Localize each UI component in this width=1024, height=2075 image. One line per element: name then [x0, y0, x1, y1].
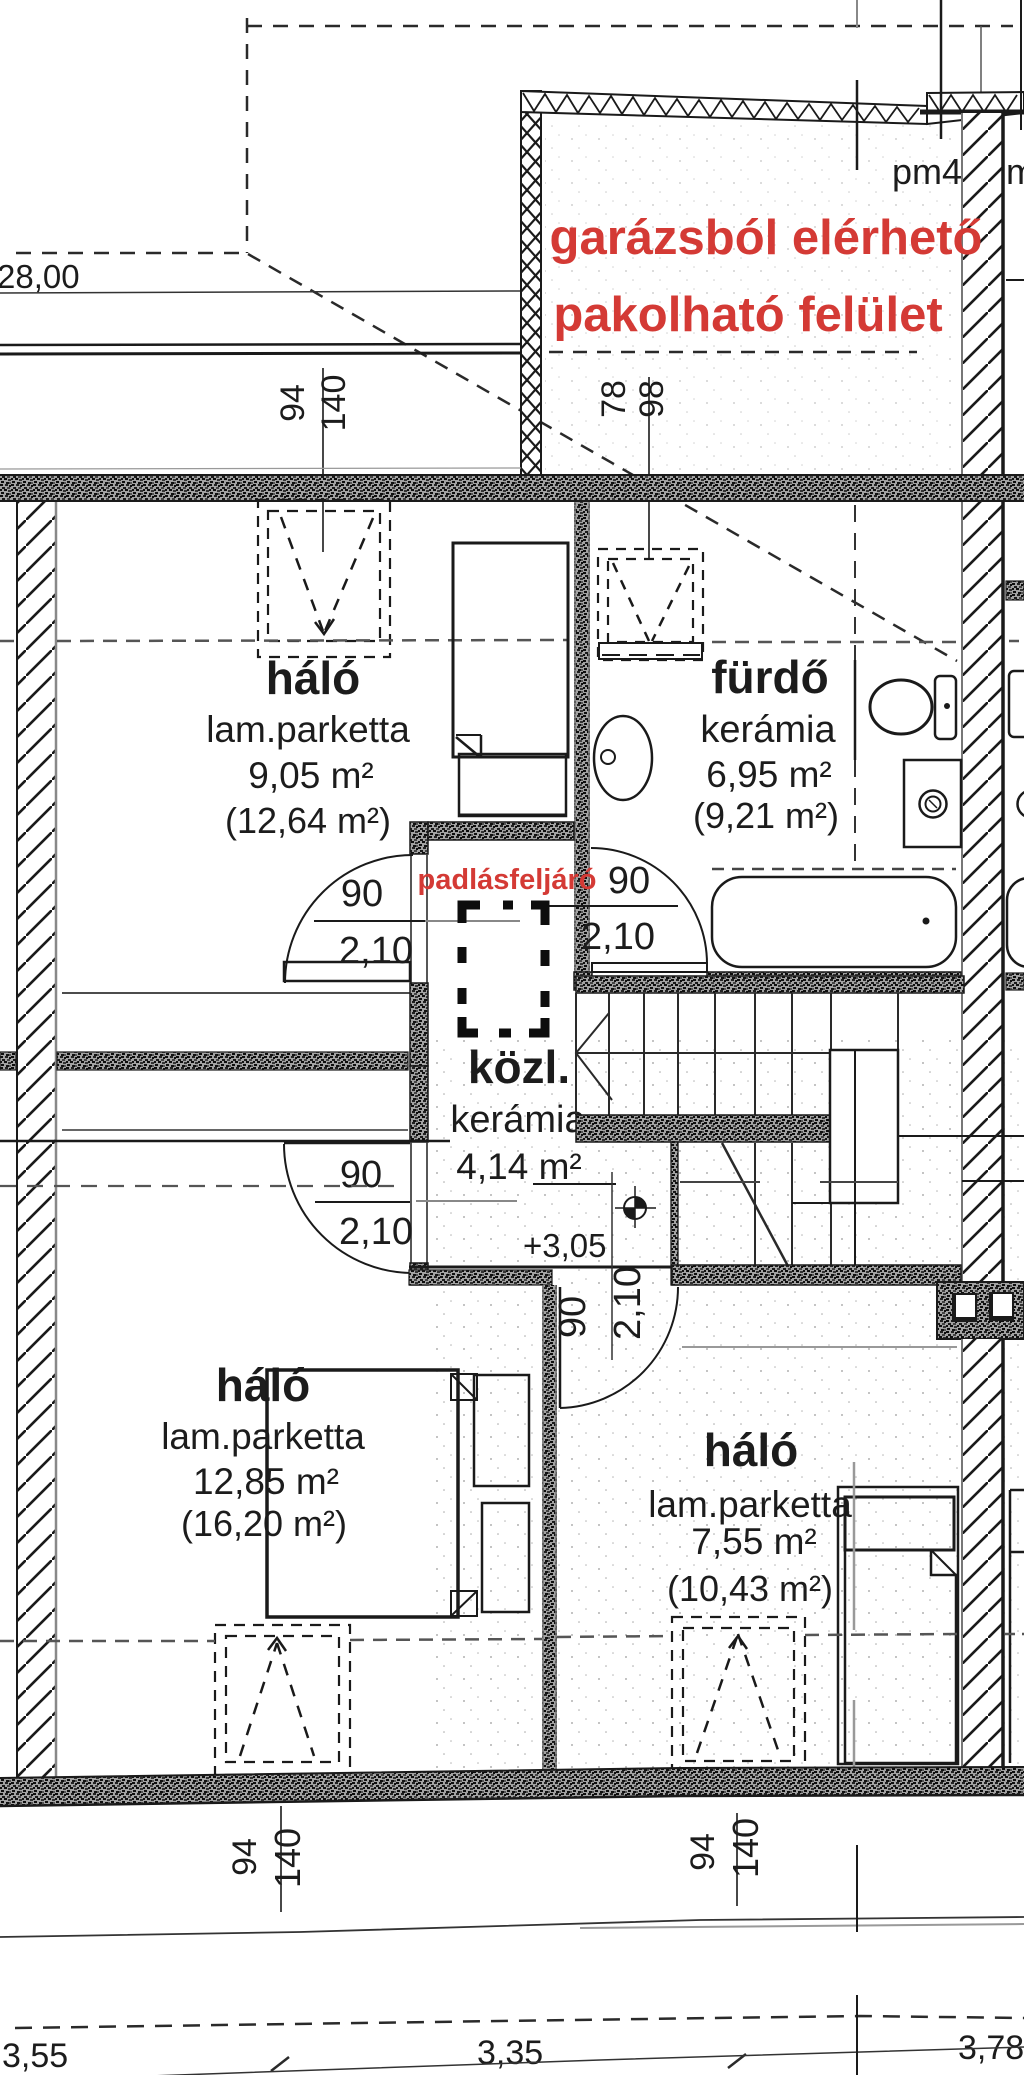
svg-text:(12,64 m²): (12,64 m²) [225, 800, 391, 841]
svg-text:lam.parketta: lam.parketta [161, 1416, 365, 1457]
svg-text:2,10: 2,10 [581, 916, 655, 958]
svg-text:+3,05: +3,05 [523, 1227, 607, 1264]
svg-text:(16,20 m²): (16,20 m²) [181, 1503, 347, 1544]
svg-text:fürdő: fürdő [711, 651, 829, 703]
svg-text:140: 140 [315, 375, 353, 432]
svg-text:padlásfeljáró: padlásfeljáró [418, 864, 597, 896]
svg-text:94: 94 [684, 1833, 722, 1871]
svg-text:lam.parketta: lam.parketta [206, 709, 410, 750]
svg-text:140: 140 [725, 1818, 766, 1878]
svg-text:kerámia: kerámia [450, 1099, 586, 1141]
svg-text:(9,21 m²): (9,21 m²) [693, 795, 839, 836]
svg-text:2,10: 2,10 [607, 1266, 649, 1340]
svg-text:(10,43 m²): (10,43 m²) [667, 1568, 833, 1609]
svg-text:28,00: 28,00 [0, 258, 80, 295]
svg-text:m: m [1006, 151, 1024, 192]
svg-text:4,14 m²: 4,14 m² [456, 1146, 581, 1187]
svg-text:90: 90 [340, 1154, 382, 1196]
svg-text:6,95 m²: 6,95 m² [706, 754, 831, 795]
svg-text:90: 90 [552, 1296, 594, 1338]
svg-text:háló: háló [266, 652, 361, 704]
svg-text:98: 98 [633, 380, 671, 418]
svg-text:2,10: 2,10 [339, 1211, 413, 1253]
svg-text:garázsból elérhető: garázsból elérhető [550, 211, 983, 265]
svg-text:9,05 m²: 9,05 m² [248, 755, 373, 796]
svg-text:90: 90 [341, 873, 383, 915]
svg-text:lam.parketta: lam.parketta [648, 1484, 852, 1525]
svg-text:háló: háló [216, 1359, 311, 1411]
svg-text:94: 94 [274, 384, 312, 422]
svg-text:140: 140 [267, 1828, 308, 1888]
svg-text:pakolható felület: pakolható felület [553, 288, 942, 342]
svg-text:kerámia: kerámia [700, 709, 836, 751]
svg-text:3,35: 3,35 [477, 2034, 543, 2072]
svg-text:90: 90 [608, 860, 650, 902]
svg-text:háló: háló [704, 1424, 799, 1476]
svg-text:közl.: közl. [468, 1041, 570, 1093]
svg-text:pm4: pm4 [892, 151, 962, 192]
svg-text:94: 94 [226, 1838, 264, 1876]
svg-text:2,10: 2,10 [339, 930, 413, 972]
svg-text:3,55: 3,55 [2, 2037, 68, 2075]
svg-text:78: 78 [595, 380, 633, 418]
svg-text:7,55 m²: 7,55 m² [691, 1521, 816, 1562]
